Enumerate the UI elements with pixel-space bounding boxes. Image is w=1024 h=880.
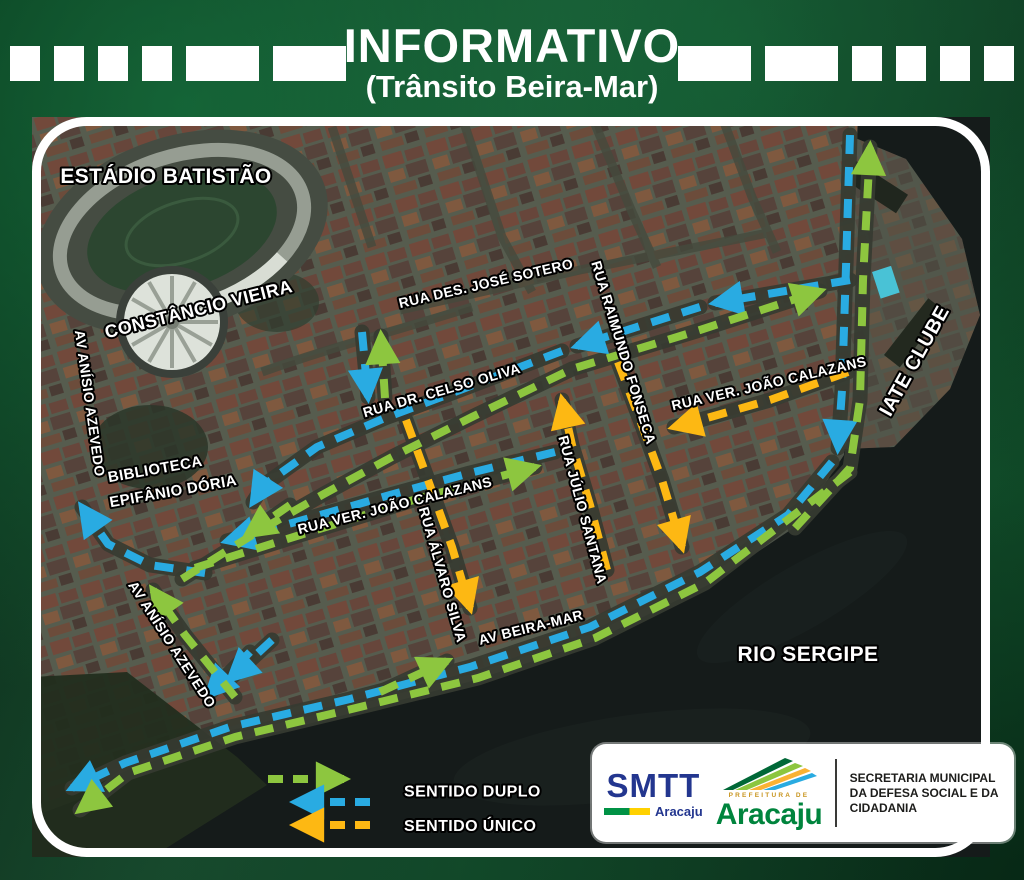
secretaria-line2: DA DEFESA SOCIAL E DA CIDADANIA (850, 786, 1002, 816)
swoosh-icon (721, 756, 817, 792)
smtt-name: SMTT (606, 769, 700, 802)
footer-logos: SMTT Aracaju PREFEITURA DE Aracaju SECRE… (592, 744, 1014, 842)
label-estadio-batistao: ESTÁDIO BATISTÃO (60, 165, 271, 188)
prefeitura-name: Aracaju (716, 800, 823, 830)
prefeitura-logo: PREFEITURA DE Aracaju (716, 756, 823, 831)
header-dashes-right (678, 46, 1014, 81)
smtt-logo: SMTT Aracaju (604, 769, 703, 818)
legend-label-1: SENTIDO ÚNICO (404, 816, 536, 835)
secretaria-line1: SECRETARIA MUNICIPAL (850, 771, 1002, 786)
secretaria-block: SECRETARIA MUNICIPAL DA DEFESA SOCIAL E … (850, 771, 1002, 816)
header: INFORMATIVO (Trânsito Beira-Mar) (0, 0, 1024, 117)
smtt-bar-icon (604, 808, 650, 815)
label-rio-sergipe: RIO SERGIPE (738, 643, 879, 666)
smtt-city: Aracaju (655, 805, 703, 818)
divider (835, 759, 836, 827)
legend-label-0: SENTIDO DUPLO (404, 784, 541, 801)
poster: INFORMATIVO (Trânsito Beira-Mar) (0, 0, 1024, 880)
